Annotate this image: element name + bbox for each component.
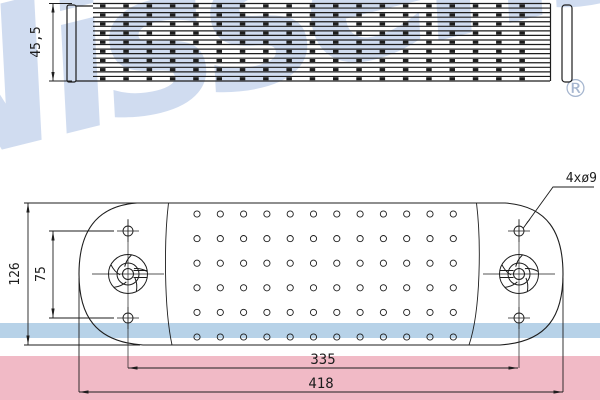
oil-port-bosses [92, 255, 555, 294]
side-core-fins [100, 4, 525, 80]
dim-text-4x9: 4xø9 [566, 171, 597, 186]
grid-right-boundary [469, 203, 479, 345]
grid-left-boundary [165, 203, 172, 345]
side-left-flange [67, 5, 76, 82]
dimension-annotations: 45,5 126 75 [8, 4, 597, 394]
technical-drawing-page: Nissens ® [0, 0, 600, 400]
side-right-flange [562, 5, 572, 82]
dimension-45-5: 45,5 [29, 4, 72, 82]
dim-text-335: 335 [310, 352, 335, 368]
dim-text-75: 75 [34, 266, 49, 282]
cooling-hole-grid [194, 211, 457, 340]
oil-cooler-side-view [67, 4, 572, 83]
dim-text-418: 418 [308, 376, 333, 392]
dim-text-126: 126 [8, 262, 23, 285]
dimension-4x9-leader: 4xø9 [523, 171, 597, 229]
oil-cooler-drawing: 45,5 126 75 [0, 0, 600, 400]
dim-text-45-5: 45,5 [29, 26, 44, 57]
dimension-418: 418 [79, 278, 563, 394]
dimension-75: 75 [34, 231, 114, 318]
side-core-tubes [93, 4, 550, 82]
center-lines [128, 219, 519, 368]
mounting-bolt-holes [117, 220, 530, 329]
oil-cooler-front-view [79, 203, 563, 368]
dimension-335: 335 [128, 352, 518, 370]
